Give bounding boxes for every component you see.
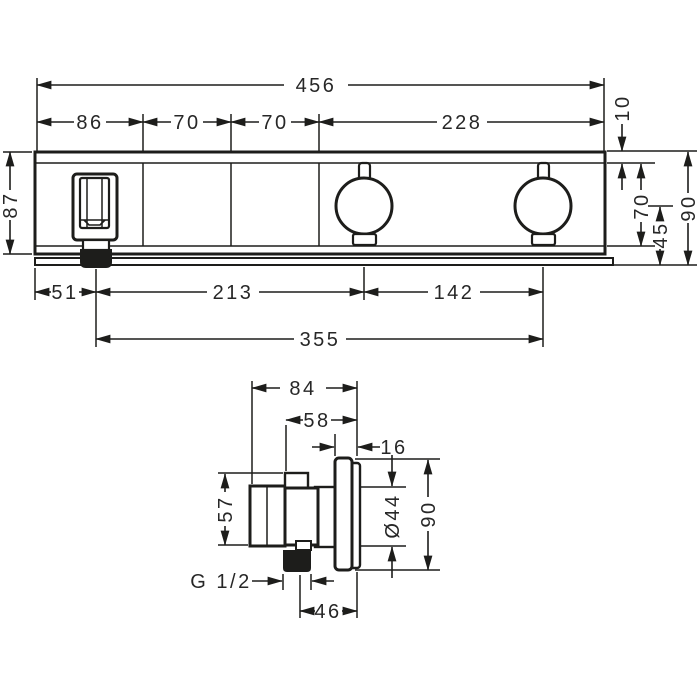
dim-connection-thread: G 1/2	[190, 571, 251, 593]
escutcheon-plate	[335, 458, 352, 570]
dim-handle-spacing: 142	[434, 282, 475, 304]
dim-total-width: 456	[296, 75, 337, 97]
dim-center-to-bottom: 45	[650, 221, 672, 248]
thread-step	[296, 541, 311, 550]
knob2-bottom-tab	[532, 234, 555, 245]
dim-spout-to-handle2: 355	[300, 329, 341, 351]
technical-drawing-page: 456 86 70 70 228 10 87 70	[0, 0, 700, 700]
spout-outlet	[80, 249, 112, 268]
panel-base-plate	[35, 258, 613, 265]
knob1-circle	[336, 178, 392, 234]
knob1-bottom-tab	[353, 234, 376, 245]
knob2-circle	[515, 178, 571, 234]
dim-top-edge-offset: 10	[612, 94, 634, 121]
dim-axis-to-wall: 46	[314, 601, 341, 623]
dim-side-body-height: 57	[215, 495, 237, 522]
dim-body-depth: 58	[303, 410, 330, 432]
dim-section-3: 70	[261, 112, 288, 134]
dim-overall-depth: 84	[289, 378, 316, 400]
dim-body-height: 87	[0, 191, 22, 218]
side-view-drawing: 84 58 16 57 Ø44 90 G 1/2	[190, 378, 440, 623]
dim-section-2: 70	[173, 112, 200, 134]
dim-overall-height: 90	[678, 194, 700, 221]
dim-escutcheon-height: 90	[418, 500, 440, 527]
dim-face-height: 70	[631, 192, 653, 219]
body-main-block	[285, 488, 318, 545]
wall-escutcheon	[335, 458, 360, 570]
spout-neck	[83, 240, 109, 250]
dim-holder-section: 86	[76, 112, 103, 134]
dim-handle-diameter: Ø44	[382, 493, 404, 538]
dim-left-to-spout: 51	[51, 282, 78, 304]
body-top-boss	[285, 473, 308, 488]
thread-nipple	[283, 550, 311, 572]
front-view-drawing: 456 86 70 70 228 10 87 70	[0, 75, 700, 351]
valve-body	[250, 473, 337, 572]
dim-spout-to-handle1: 213	[213, 282, 254, 304]
dim-escutcheon-depth: 16	[380, 437, 407, 459]
dim-right-section: 228	[442, 112, 483, 134]
dimension-drawing: 456 86 70 70 228 10 87 70	[0, 0, 700, 700]
